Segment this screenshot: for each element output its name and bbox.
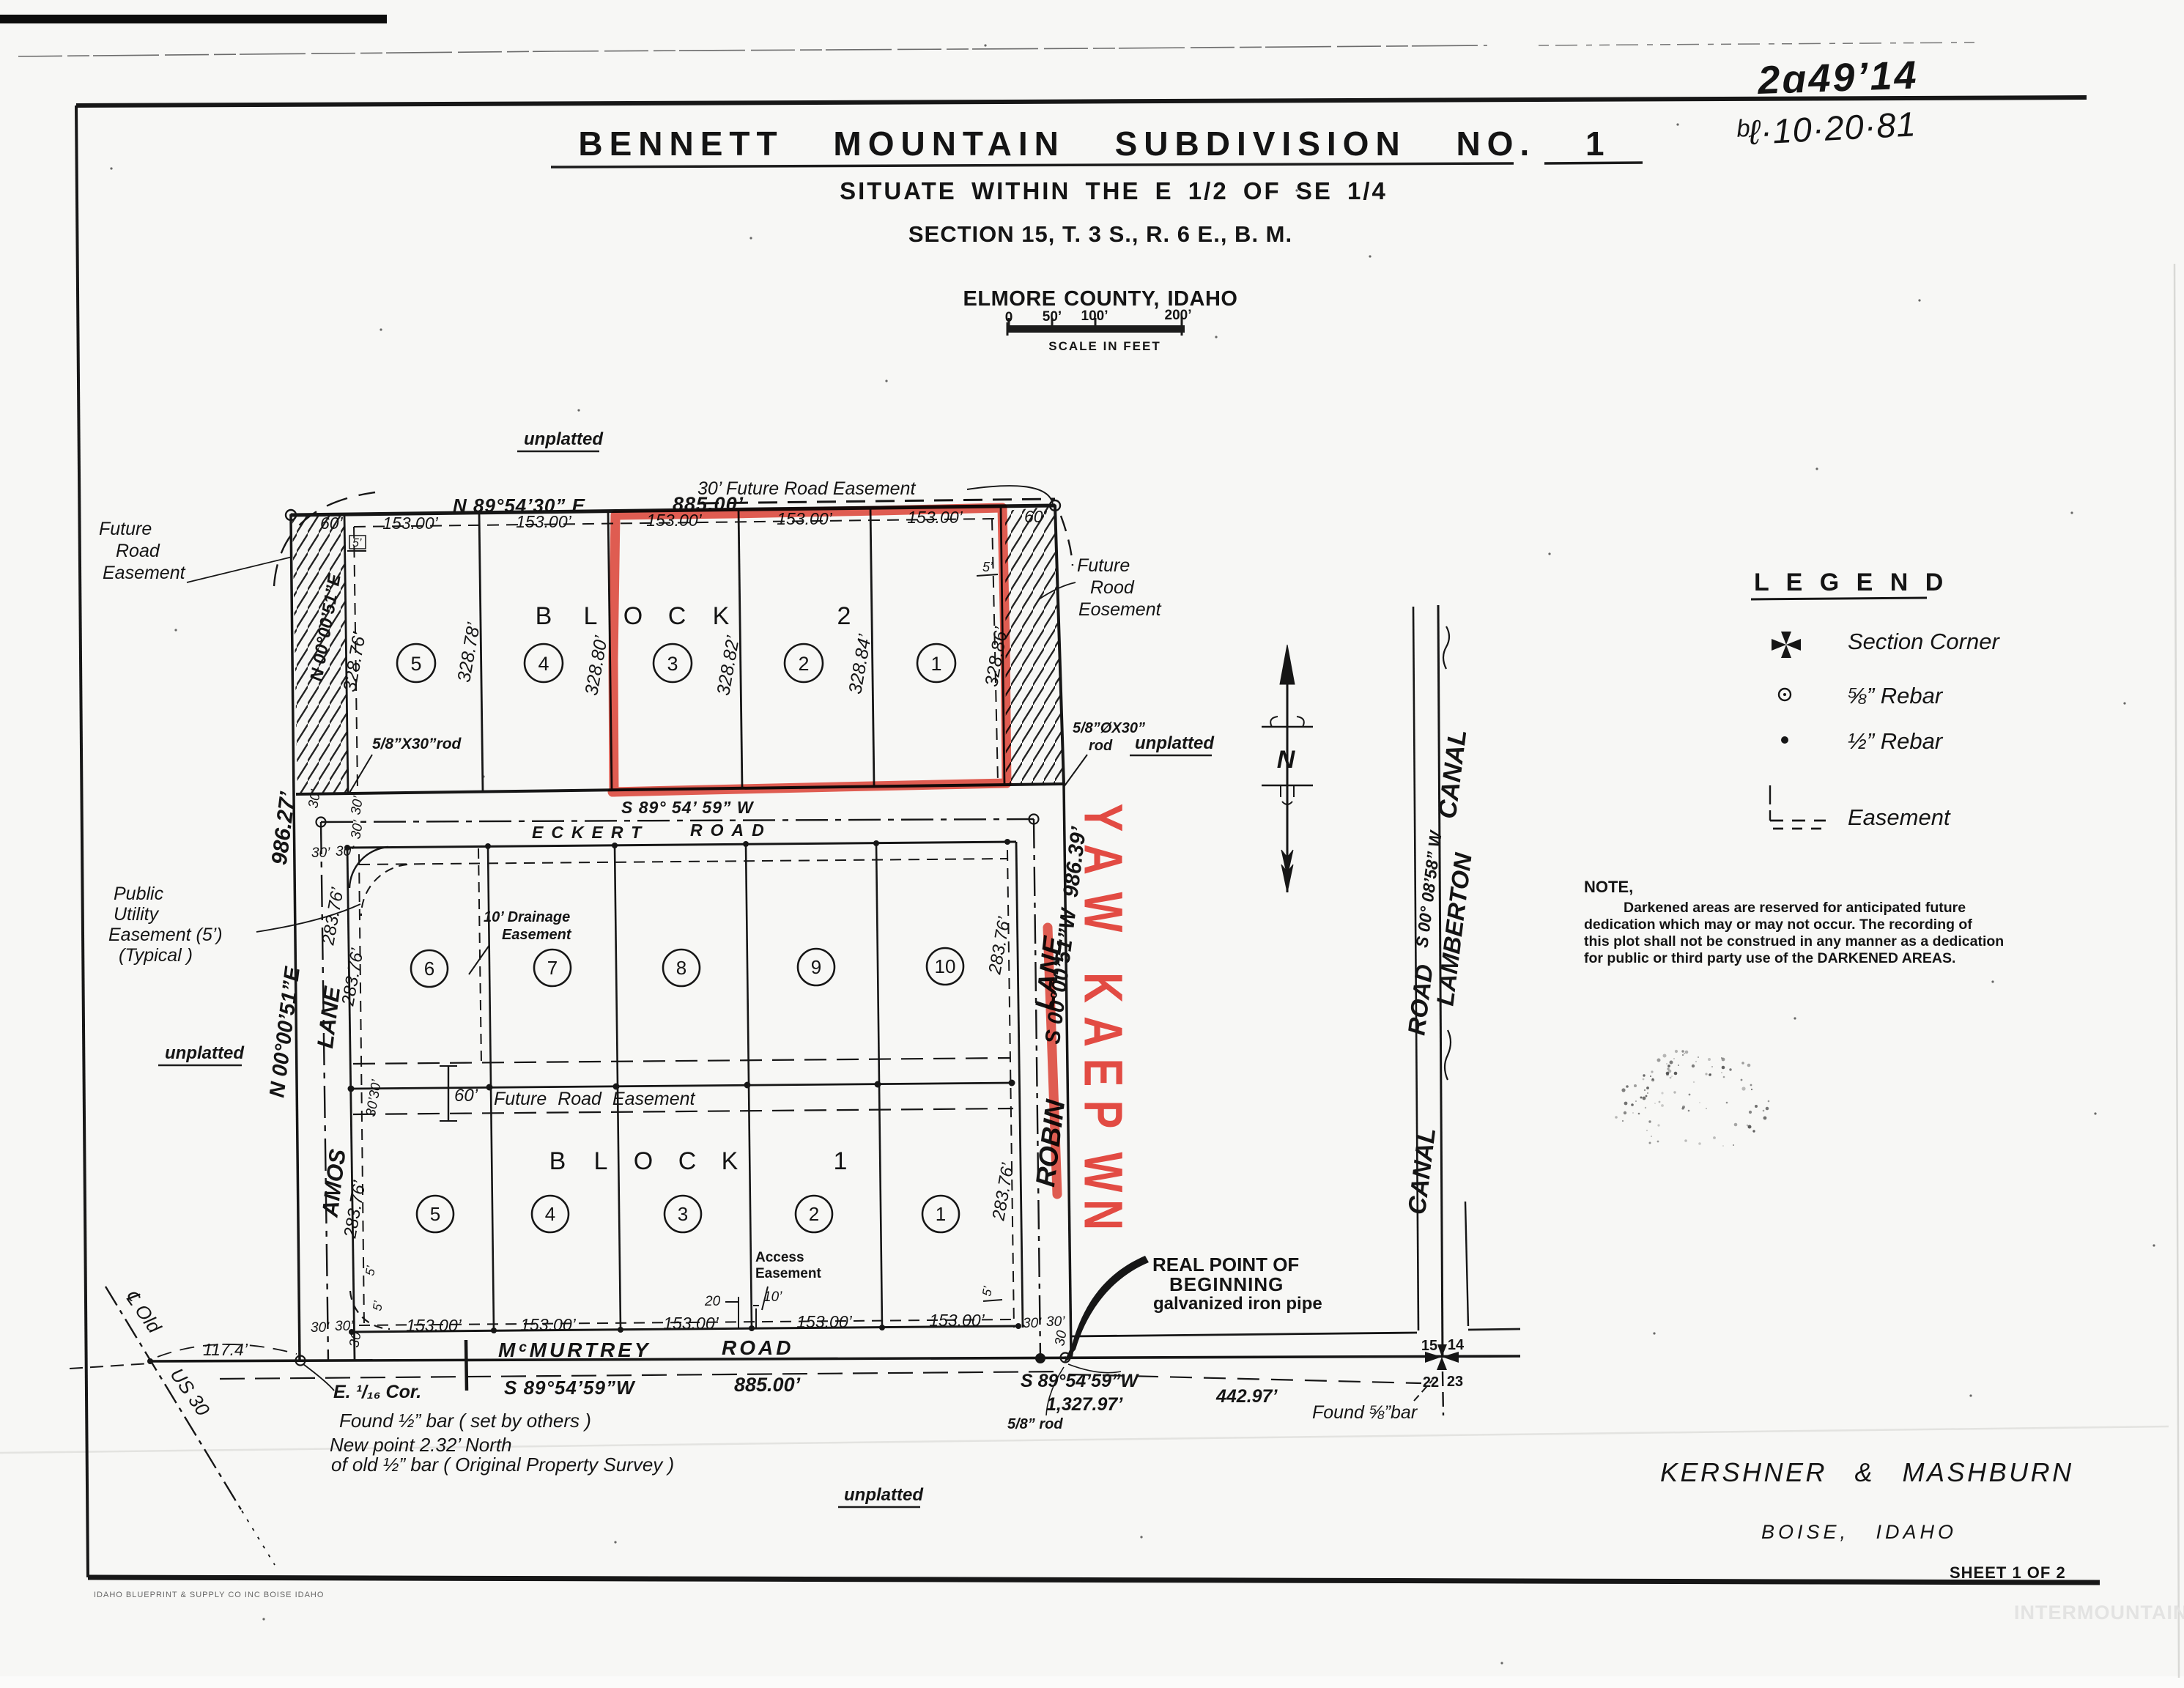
svg-text:0: 0	[1005, 310, 1013, 325]
svg-text:dedication which may or may: dedication which may or may not occur. T…	[1584, 917, 1972, 933]
svg-text:½” Rebar: ½” Rebar	[1848, 728, 1944, 754]
svg-text:unplatted: unplatted	[844, 1485, 924, 1505]
svg-text:SCALE IN FEET: SCALE IN FEET	[1048, 339, 1161, 353]
svg-text:5: 5	[430, 1203, 440, 1225]
svg-text:SITUATE WITHIN THE E 1/2 OF SE: SITUATE WITHIN THE E 1/2 OF SE 1/4	[840, 177, 1388, 204]
svg-text:3: 3	[667, 653, 678, 675]
svg-text:7: 7	[547, 957, 558, 979]
svg-text:5/8”ØX30”: 5/8”ØX30”	[1073, 720, 1145, 736]
svg-text:ROAD: ROAD	[690, 821, 772, 840]
svg-text:L E G E N D: L E G E N D	[1754, 569, 1948, 596]
svg-text:N: N	[1277, 746, 1296, 774]
svg-text:Darkened areas are reserved f: Darkened areas are reserved for anticipa…	[1624, 900, 1966, 916]
svg-text:unplatted: unplatted	[165, 1043, 245, 1063]
svg-text:BEGINNING: BEGINNING	[1169, 1273, 1284, 1295]
svg-text:(Typical ): (Typical )	[119, 945, 193, 966]
svg-text:B: B	[536, 602, 552, 630]
svg-text:S 89° 54’ 59” W: S 89° 54’ 59” W	[621, 798, 755, 817]
svg-text:2ɑ49’14: 2ɑ49’14	[1756, 53, 1919, 103]
svg-text:60’: 60’	[1024, 507, 1048, 526]
svg-text:30’: 30’	[306, 788, 324, 809]
svg-text:K: K	[722, 1147, 739, 1175]
svg-text:Rood: Rood	[1090, 577, 1135, 598]
svg-text:this plot shall not be constru: this plot shall not be construed in any …	[1584, 933, 2004, 949]
svg-text:⅝” Rebar: ⅝” Rebar	[1848, 683, 1944, 708]
svg-text:4: 4	[545, 1203, 555, 1225]
svg-text:60’: 60’	[320, 514, 344, 533]
svg-text:unplatted: unplatted	[524, 429, 604, 449]
svg-text:New point 2.32’ North: New point 2.32’ North	[330, 1434, 512, 1456]
svg-text:L: L	[594, 1147, 608, 1175]
svg-text:A: A	[1073, 1016, 1133, 1047]
svg-text:W: W	[1073, 892, 1133, 933]
svg-text:30’: 30’	[348, 794, 366, 815]
svg-text:2: 2	[798, 653, 809, 675]
svg-text:S 89°54’59”W: S 89°54’59”W	[504, 1377, 636, 1399]
svg-text:ECKERT: ECKERT	[532, 823, 649, 842]
svg-text:K: K	[1073, 972, 1133, 1003]
svg-text:SECTION 15, T. 3 S., R. 6 E.: SECTION 15, T. 3 S., R. 6 E., B. M.	[908, 221, 1292, 247]
svg-text:5/8”X30”rod: 5/8”X30”rod	[372, 736, 462, 752]
svg-text:153.00’: 153.00’	[663, 1314, 719, 1333]
svg-text:153.00’: 153.00’	[929, 1311, 985, 1330]
svg-text:30’: 30’	[336, 844, 355, 859]
svg-text:N: N	[1073, 1199, 1133, 1230]
svg-text:Utility: Utility	[114, 904, 160, 925]
svg-text:NOTE,: NOTE,	[1584, 878, 1633, 896]
svg-text:5’: 5’	[352, 537, 362, 549]
svg-text:K: K	[713, 602, 730, 630]
svg-text:Eosement: Eosement	[1078, 599, 1162, 620]
svg-text:A: A	[1073, 844, 1133, 875]
svg-text:1,327.97’: 1,327.97’	[1046, 1394, 1123, 1415]
svg-text:2: 2	[809, 1203, 819, 1225]
svg-text:153.00’: 153.00’	[382, 514, 438, 533]
svg-text:2: 2	[837, 602, 851, 630]
svg-text:P: P	[1073, 1100, 1133, 1129]
svg-text:200’: 200’	[1165, 308, 1192, 323]
svg-text:442.97’: 442.97’	[1215, 1386, 1278, 1407]
svg-text:100’: 100’	[1081, 308, 1108, 324]
svg-text:IDAHO BLUEPRINT & SUPPLY CO IN: IDAHO BLUEPRINT & SUPPLY CO INC BOISE ID…	[94, 1591, 324, 1599]
svg-text:4: 4	[538, 653, 549, 675]
svg-text:10’ Drainage: 10’ Drainage	[484, 909, 570, 925]
svg-text:BENNETT MOUNTAIN SUBDIVISION N: BENNETT MOUNTAIN SUBDIVISION NO. 1	[578, 125, 1610, 163]
svg-text:Road: Road	[116, 541, 160, 561]
svg-text:50’: 50’	[1043, 309, 1062, 325]
svg-text:Easement: Easement	[502, 927, 572, 943]
svg-text:for public or third party u: for public or third party use of the DAR…	[1584, 950, 1955, 966]
svg-text:Found ⅝”bar: Found ⅝”bar	[1312, 1402, 1418, 1423]
svg-text:885.00’: 885.00’	[734, 1374, 801, 1396]
svg-text:30: 30	[1052, 1329, 1070, 1347]
svg-text:30: 30	[347, 1330, 364, 1349]
svg-text:5: 5	[410, 653, 421, 675]
svg-text:ELMORE COUNTY, IDAHO: ELMORE COUNTY, IDAHO	[963, 287, 1238, 311]
svg-text:20: 20	[704, 1294, 721, 1309]
svg-text:Y: Y	[1073, 804, 1133, 832]
svg-text:117.4’: 117.4’	[203, 1340, 248, 1359]
svg-text:O: O	[634, 1147, 653, 1175]
svg-text:rod: rod	[1089, 738, 1113, 754]
svg-text:BOISE, IDAHO: BOISE, IDAHO	[1761, 1521, 1957, 1543]
svg-text:L: L	[584, 602, 598, 630]
svg-text:30’: 30’	[1023, 1316, 1042, 1331]
svg-text:10’: 10’	[763, 1289, 782, 1305]
svg-text:B: B	[549, 1147, 566, 1175]
svg-text:30’ Future Road Easement: 30’ Future Road Easement	[697, 478, 916, 499]
svg-text:153.00’: 153.00’	[520, 1315, 576, 1334]
svg-text:unplatted: unplatted	[1135, 733, 1215, 753]
svg-text:Section Corner: Section Corner	[1848, 629, 2000, 654]
svg-text:Future: Future	[1077, 555, 1130, 576]
svg-text:30’: 30’	[311, 1320, 330, 1336]
svg-text:Access: Access	[755, 1250, 804, 1265]
svg-text:INTERMOUNTAIN: INTERMOUNTAIN	[2014, 1602, 2184, 1624]
svg-text:1: 1	[834, 1147, 848, 1175]
svg-text:E: E	[1073, 1059, 1133, 1087]
svg-text:9: 9	[811, 956, 821, 978]
svg-text:6: 6	[424, 958, 434, 980]
svg-text:S 89°54’59”W: S 89°54’59”W	[1021, 1371, 1139, 1391]
svg-text:5/8” rod: 5/8” rod	[1007, 1416, 1063, 1432]
svg-text:1: 1	[936, 1203, 946, 1225]
svg-text:153.00’: 153.00’	[406, 1316, 462, 1335]
svg-text:SHEET 1 OF 2: SHEET 1 OF 2	[1950, 1563, 2066, 1582]
svg-text:3: 3	[678, 1203, 688, 1225]
svg-text:C: C	[668, 602, 686, 630]
svg-text:of old ½” bar ( Original Prope: of old ½” bar ( Original Property Survey…	[331, 1454, 674, 1476]
svg-text:Future: Future	[99, 519, 152, 539]
svg-text:14: 14	[1448, 1337, 1465, 1353]
svg-text:O: O	[623, 602, 643, 630]
svg-text:30’: 30’	[1046, 1314, 1065, 1330]
svg-text:153.00’: 153.00’	[796, 1312, 852, 1331]
svg-text:C: C	[678, 1147, 697, 1175]
svg-text:KERSHNER & MASHBURN: KERSHNER & MASHBURN	[1660, 1457, 2074, 1487]
svg-text:10: 10	[935, 955, 956, 977]
svg-text:E. ¹/₁₆ Cor.: E. ¹/₁₆ Cor.	[333, 1382, 421, 1402]
svg-text:Easement (5’): Easement (5’)	[108, 925, 223, 945]
svg-text:1: 1	[930, 653, 941, 675]
svg-text:5’: 5’	[982, 560, 993, 574]
svg-text:ROAD: ROAD	[722, 1336, 793, 1359]
svg-text:30’: 30’	[348, 818, 366, 840]
svg-text:8: 8	[676, 957, 686, 979]
svg-text:W: W	[1073, 1152, 1133, 1193]
svg-text:23: 23	[1447, 1374, 1463, 1390]
svg-text:galvanized iron pipe: galvanized iron pipe	[1153, 1294, 1322, 1314]
svg-text:MᶜMURTREY: MᶜMURTREY	[498, 1339, 651, 1361]
svg-text:22: 22	[1423, 1374, 1439, 1391]
svg-text:15: 15	[1421, 1338, 1437, 1354]
svg-text:Public: Public	[114, 884, 164, 904]
svg-text:Found ½” bar ( set by others ): Found ½” bar ( set by others )	[339, 1410, 591, 1432]
svg-text:Easement: Easement	[1848, 804, 1951, 830]
svg-text:Easement: Easement	[755, 1266, 821, 1281]
svg-text:REAL POINT OF: REAL POINT OF	[1152, 1254, 1299, 1276]
svg-text:60’: 60’	[454, 1086, 478, 1106]
svg-text:153.00’: 153.00’	[516, 512, 571, 531]
svg-text:Future Road Easement: Future Road Easement	[494, 1089, 696, 1109]
svg-text:Easement: Easement	[103, 563, 186, 583]
